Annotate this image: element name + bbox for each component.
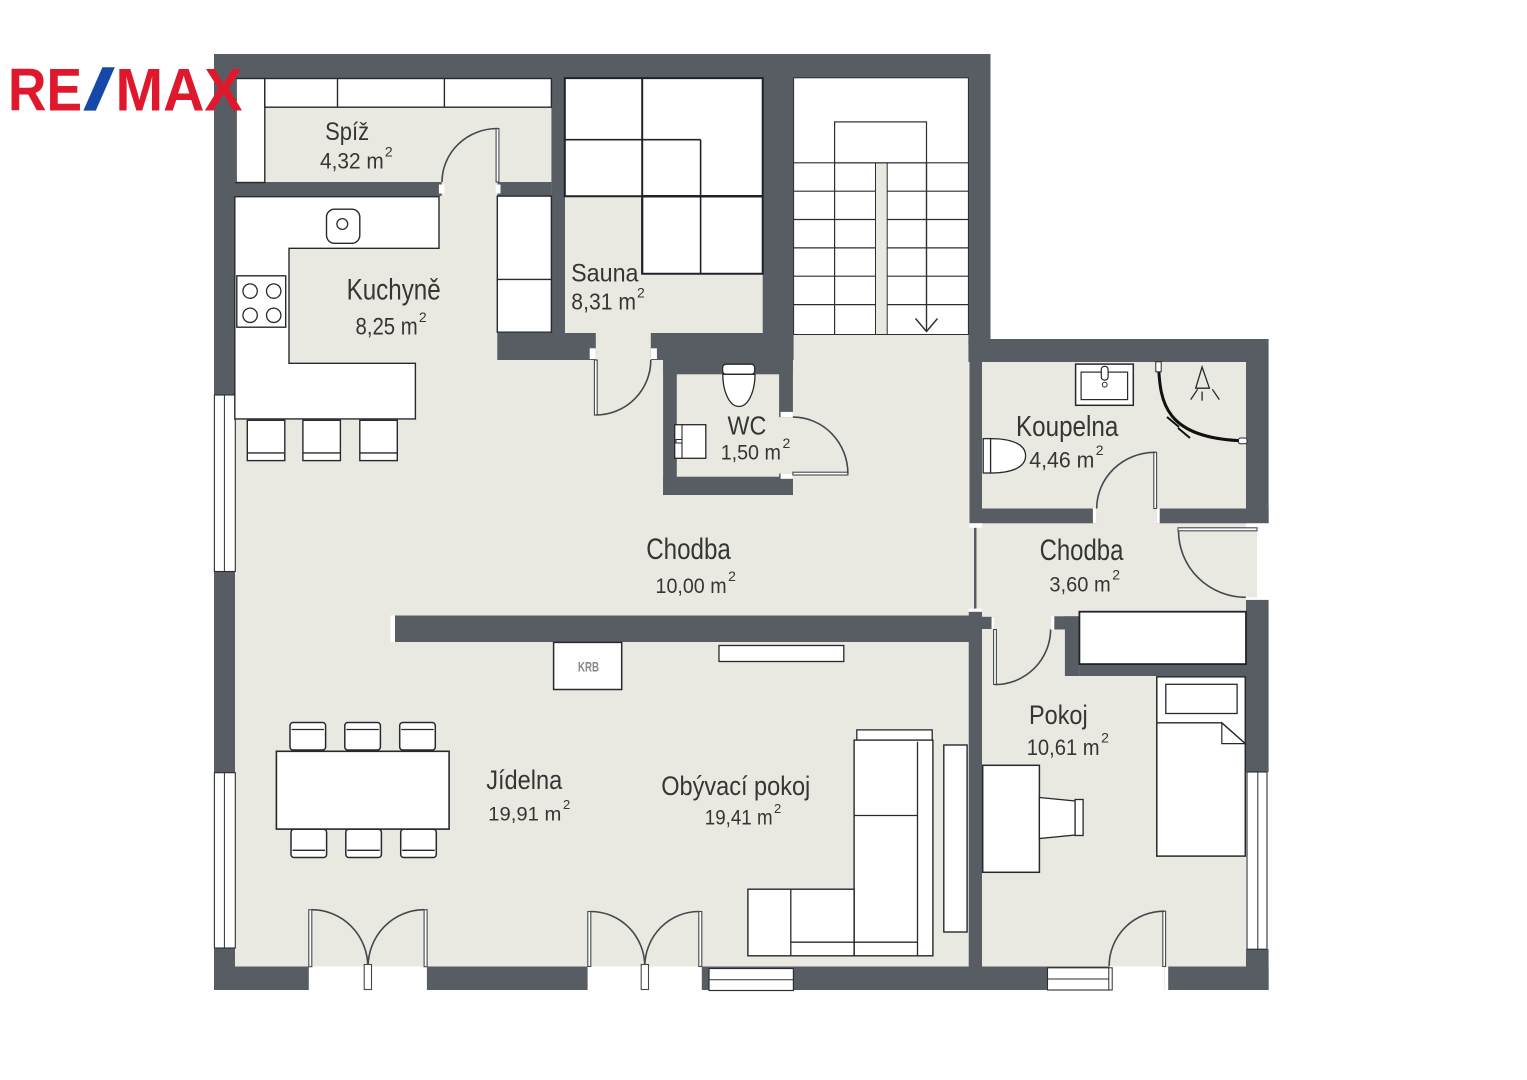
svg-text:2: 2 <box>385 143 393 159</box>
svg-text:Pokoj: Pokoj <box>1029 700 1088 730</box>
svg-text:WC: WC <box>728 411 767 441</box>
svg-text:MAX: MAX <box>116 57 243 124</box>
svg-text:RE: RE <box>8 57 82 124</box>
svg-text:Koupelna: Koupelna <box>1016 411 1118 443</box>
svg-text:Obývací pokoj: Obývací pokoj <box>661 771 810 801</box>
svg-text:Chodba: Chodba <box>1040 535 1124 567</box>
svg-text:19,41 m: 19,41 m <box>705 807 773 830</box>
svg-text:8,25 m: 8,25 m <box>356 314 418 341</box>
svg-text:Chodba: Chodba <box>646 533 731 566</box>
svg-text:2: 2 <box>419 309 427 325</box>
svg-text:3,60 m: 3,60 m <box>1049 573 1110 597</box>
svg-text:2: 2 <box>1101 730 1109 746</box>
svg-text:2: 2 <box>637 284 645 300</box>
svg-text:2: 2 <box>1096 442 1104 458</box>
svg-text:10,61 m: 10,61 m <box>1027 735 1100 760</box>
svg-text:4,32 m: 4,32 m <box>320 149 384 174</box>
svg-text:19,91 m: 19,91 m <box>488 803 561 825</box>
svg-text:10,00 m: 10,00 m <box>656 574 727 598</box>
svg-text:2: 2 <box>783 435 791 451</box>
svg-text:Sauna: Sauna <box>571 261 639 288</box>
svg-text:KRB: KRB <box>578 659 599 675</box>
svg-text:2: 2 <box>728 568 736 584</box>
svg-text:1,50 m: 1,50 m <box>721 441 781 465</box>
svg-text:2: 2 <box>1112 566 1120 582</box>
svg-text:2: 2 <box>774 801 781 816</box>
svg-text:Jídelna: Jídelna <box>486 765 562 795</box>
svg-text:2: 2 <box>563 797 570 812</box>
svg-text:8,31 m: 8,31 m <box>571 289 636 315</box>
svg-text:Spíž: Spíž <box>325 119 369 146</box>
svg-text:Kuchyně: Kuchyně <box>347 274 441 306</box>
svg-text:4,46 m: 4,46 m <box>1029 447 1094 472</box>
